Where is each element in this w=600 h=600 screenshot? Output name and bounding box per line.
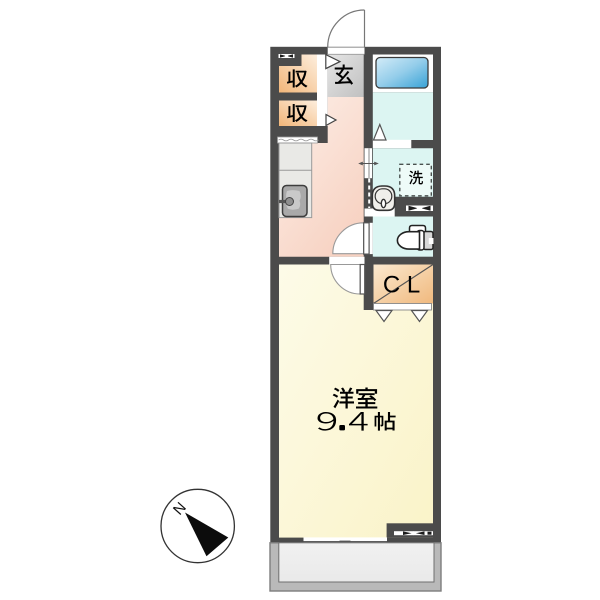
svg-text:C L: C L [383,272,420,299]
